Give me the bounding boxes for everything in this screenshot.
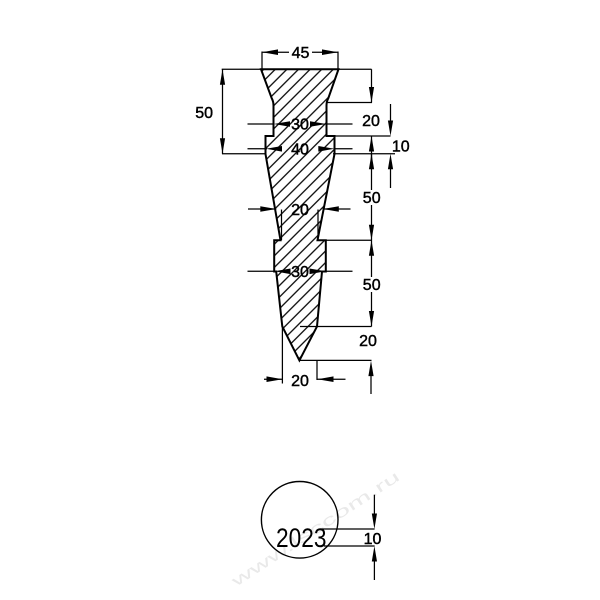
svg-text:10: 10 (364, 531, 382, 548)
svg-text:20: 20 (362, 113, 380, 130)
svg-text:2023: 2023 (276, 523, 327, 553)
svg-text:40: 40 (291, 141, 309, 158)
svg-text:50: 50 (363, 277, 381, 294)
svg-text:50: 50 (195, 105, 213, 122)
svg-text:20: 20 (291, 373, 309, 390)
svg-text:20: 20 (359, 333, 377, 350)
svg-text:20: 20 (291, 202, 309, 219)
svg-text:10: 10 (392, 139, 410, 156)
svg-text:45: 45 (292, 45, 310, 62)
svg-text:30: 30 (291, 117, 309, 134)
svg-text:50: 50 (363, 190, 381, 207)
svg-text:30: 30 (291, 264, 309, 281)
